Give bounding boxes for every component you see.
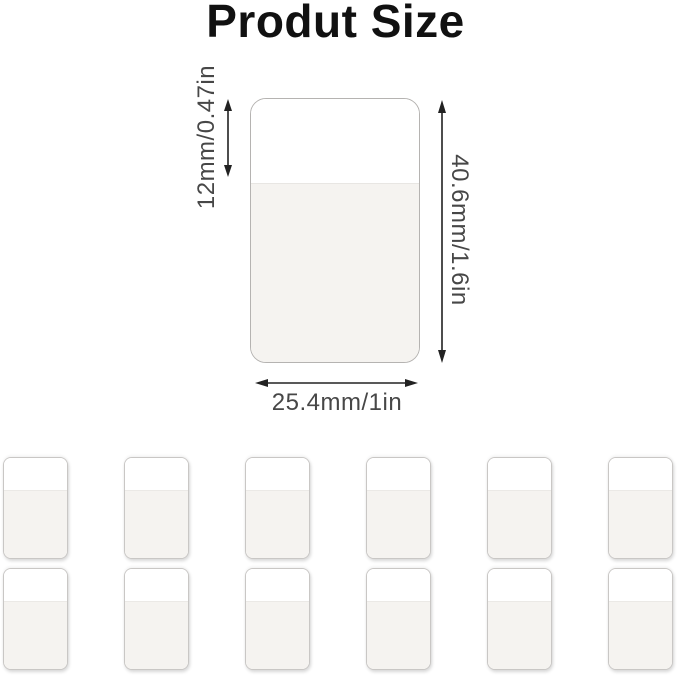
small-tab <box>3 457 68 559</box>
width-measure-arrow-icon <box>255 376 418 390</box>
small-tab-top-section <box>4 458 67 490</box>
small-tab-body-section <box>609 601 672 670</box>
small-tab-body-section <box>367 490 430 559</box>
small-tab-top-section <box>488 458 551 490</box>
small-tab <box>487 568 552 670</box>
small-tab-top-section <box>246 569 309 601</box>
main-tab-body-section <box>251 183 419 363</box>
small-tab-body-section <box>125 601 188 670</box>
small-tab-body-section <box>4 490 67 559</box>
small-tab <box>608 457 673 559</box>
main-tab-top-section <box>251 99 419 183</box>
small-tab-top-section <box>609 458 672 490</box>
small-tab-body-section <box>488 490 551 559</box>
main-tab <box>250 98 420 363</box>
small-tab-body-section <box>125 490 188 559</box>
small-tab-body-section <box>367 601 430 670</box>
product-size-infographic: Produt Size 12mm/0.47in 40.6mm/1.6in 25.… <box>0 0 679 675</box>
small-tab <box>366 568 431 670</box>
small-tab <box>245 568 310 670</box>
tabs-grid <box>3 457 673 670</box>
small-tab-top-section <box>4 569 67 601</box>
small-tab <box>366 457 431 559</box>
small-tab-body-section <box>246 601 309 670</box>
small-tab-body-section <box>4 601 67 670</box>
small-tab <box>124 568 189 670</box>
small-tab-body-section <box>246 490 309 559</box>
page-title: Produt Size <box>0 0 671 46</box>
small-tab-top-section <box>367 458 430 490</box>
height-dimension-label: 40.6mm/1.6in <box>445 154 473 305</box>
small-tab <box>608 568 673 670</box>
small-tab-top-section <box>367 569 430 601</box>
small-tab <box>124 457 189 559</box>
small-tab-top-section <box>609 569 672 601</box>
small-tab-top-section <box>125 458 188 490</box>
small-tab-top-section <box>125 569 188 601</box>
small-tab <box>3 568 68 670</box>
small-tab-top-section <box>488 569 551 601</box>
small-tab-top-section <box>246 458 309 490</box>
small-tab <box>245 457 310 559</box>
top-section-measure-arrow-icon <box>221 99 235 177</box>
small-tab <box>487 457 552 559</box>
small-tab-body-section <box>488 601 551 670</box>
small-tab-body-section <box>609 490 672 559</box>
top-section-dimension-label: 12mm/0.47in <box>193 65 221 209</box>
width-dimension-label: 25.4mm/1in <box>272 389 402 417</box>
